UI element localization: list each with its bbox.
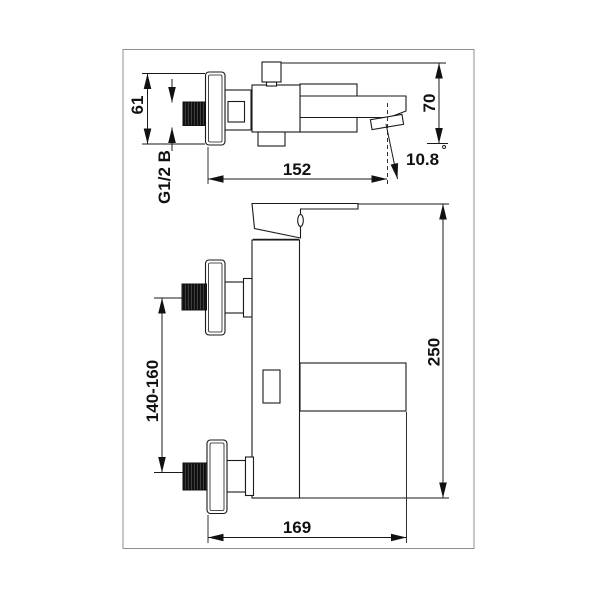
dim-label-61: 61 [128,96,147,115]
front-view: 140-160 250 169 [143,204,449,544]
lower-union-lip [246,457,254,496]
front-view-body [252,240,300,498]
lower-union-step [227,461,246,493]
front-view-lower-connection [183,440,254,514]
dim-140-160: 140-160 [143,298,183,473]
upper-threaded-tail [182,284,207,310]
dim-label-140-160: 140-160 [143,360,162,422]
top-view-diverter-knob [262,62,281,82]
top-view-body [252,85,300,132]
dim-label-70: 70 [420,94,439,113]
dim-label-degree-symbol: ° [442,142,447,157]
dim-152: 152 [208,147,387,184]
upper-union-step [225,282,244,313]
drawing-canvas: 61 G1/2 B 152 10.8 ° 70 [0,0,600,600]
top-view-threaded-tail [183,102,206,126]
top-view-union-nut [228,102,245,123]
dim-label-angle: 10.8 [406,150,439,169]
upper-union-lip [244,279,253,318]
dim-label-152: 152 [283,160,311,179]
front-view-spout [300,363,406,411]
dim-label-250: 250 [425,338,444,366]
front-view-lever-handle [252,204,358,239]
front-view-upper-connection [182,260,252,335]
dim-250: 250 [300,204,450,498]
top-view-knob-stem [267,82,277,86]
faucet-dimension-drawing: 61 G1/2 B 152 10.8 ° 70 [0,0,600,600]
dim-label-169: 169 [283,518,311,537]
dim-label-thread: G1/2 B [155,150,174,204]
lower-threaded-tail [183,463,207,490]
front-view-label-plate [263,370,280,403]
top-view: 61 G1/2 B 152 10.8 ° 70 [128,62,448,204]
front-view-handle-screw [298,215,304,227]
dim-thread: G1/2 B [155,79,174,204]
top-view-bottom-tab [258,132,285,146]
top-view-spout [300,96,406,118]
